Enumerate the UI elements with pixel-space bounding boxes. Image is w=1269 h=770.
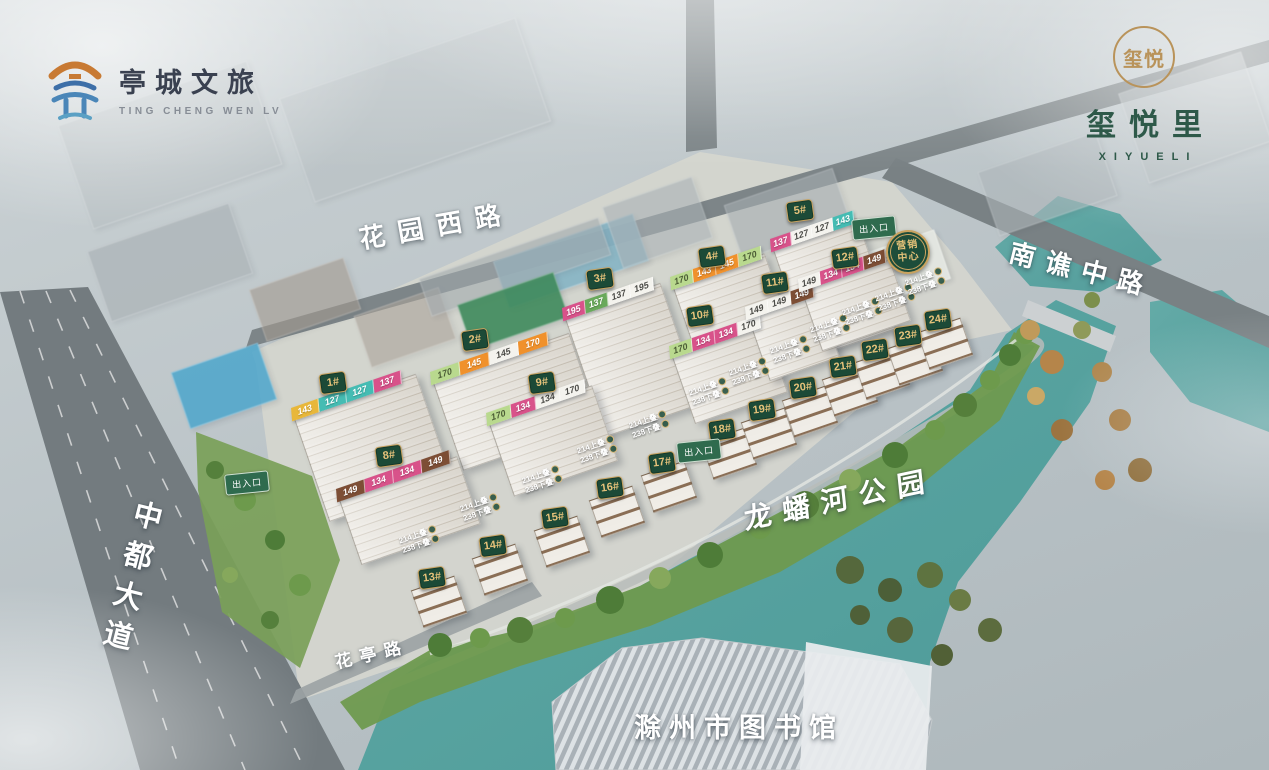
building-number-flag: 20# bbox=[788, 376, 818, 401]
pavilion-logo-icon bbox=[46, 56, 104, 122]
building-number-flag: 24# bbox=[923, 308, 953, 333]
area-label-chuzhou-library: 滁州市图书馆 bbox=[634, 706, 844, 745]
building-number-flag: 22# bbox=[860, 338, 890, 363]
building-number-flag: 15# bbox=[540, 506, 570, 531]
building-number-flag: 5# bbox=[785, 199, 815, 224]
building-number-flag: 4# bbox=[697, 245, 727, 270]
brand-right-name: 玺悦里 bbox=[1082, 100, 1219, 144]
building-number-flag: 11# bbox=[760, 271, 790, 296]
building-number-flag: 12# bbox=[830, 246, 860, 271]
brand-left-name: 亭城文旅 bbox=[119, 61, 282, 100]
building-number-flag: 16# bbox=[595, 476, 625, 501]
building-number-flag: 13# bbox=[417, 566, 447, 591]
aerial-masterplan: 143127127137 1# 170145145170 2# 19513713… bbox=[0, 0, 1269, 770]
xiyue-seal-icon: 玺悦 bbox=[1113, 26, 1175, 88]
building-number-flag: 17# bbox=[647, 451, 677, 476]
seal-characters: 玺悦 bbox=[1123, 43, 1165, 72]
brand-left-subtitle: TING CHENG WEN LV bbox=[119, 106, 282, 117]
building-number-flag: 2# bbox=[460, 328, 490, 353]
building-number-flag: 23# bbox=[893, 324, 923, 349]
brand-left-logo: 亭城文旅 TING CHENG WEN LV bbox=[46, 56, 282, 122]
building-number-flag: 8# bbox=[374, 444, 404, 469]
building-number-flag: 3# bbox=[585, 267, 615, 292]
building-number-flag: 10# bbox=[685, 304, 715, 329]
brand-right-subtitle: XIYUELI bbox=[1077, 151, 1219, 163]
building-number-flag: 14# bbox=[478, 534, 508, 559]
building-number-flag: 21# bbox=[828, 355, 858, 380]
marketing-center-line2: 中心 bbox=[897, 251, 920, 265]
road-vertical-top bbox=[686, 0, 717, 152]
building-number-flag: 9# bbox=[527, 371, 557, 396]
brand-right-logo: 玺悦 玺悦里 XIYUELI bbox=[1069, 26, 1219, 163]
building-number-flag: 1# bbox=[318, 371, 348, 396]
building-number-flag: 19# bbox=[747, 398, 777, 423]
